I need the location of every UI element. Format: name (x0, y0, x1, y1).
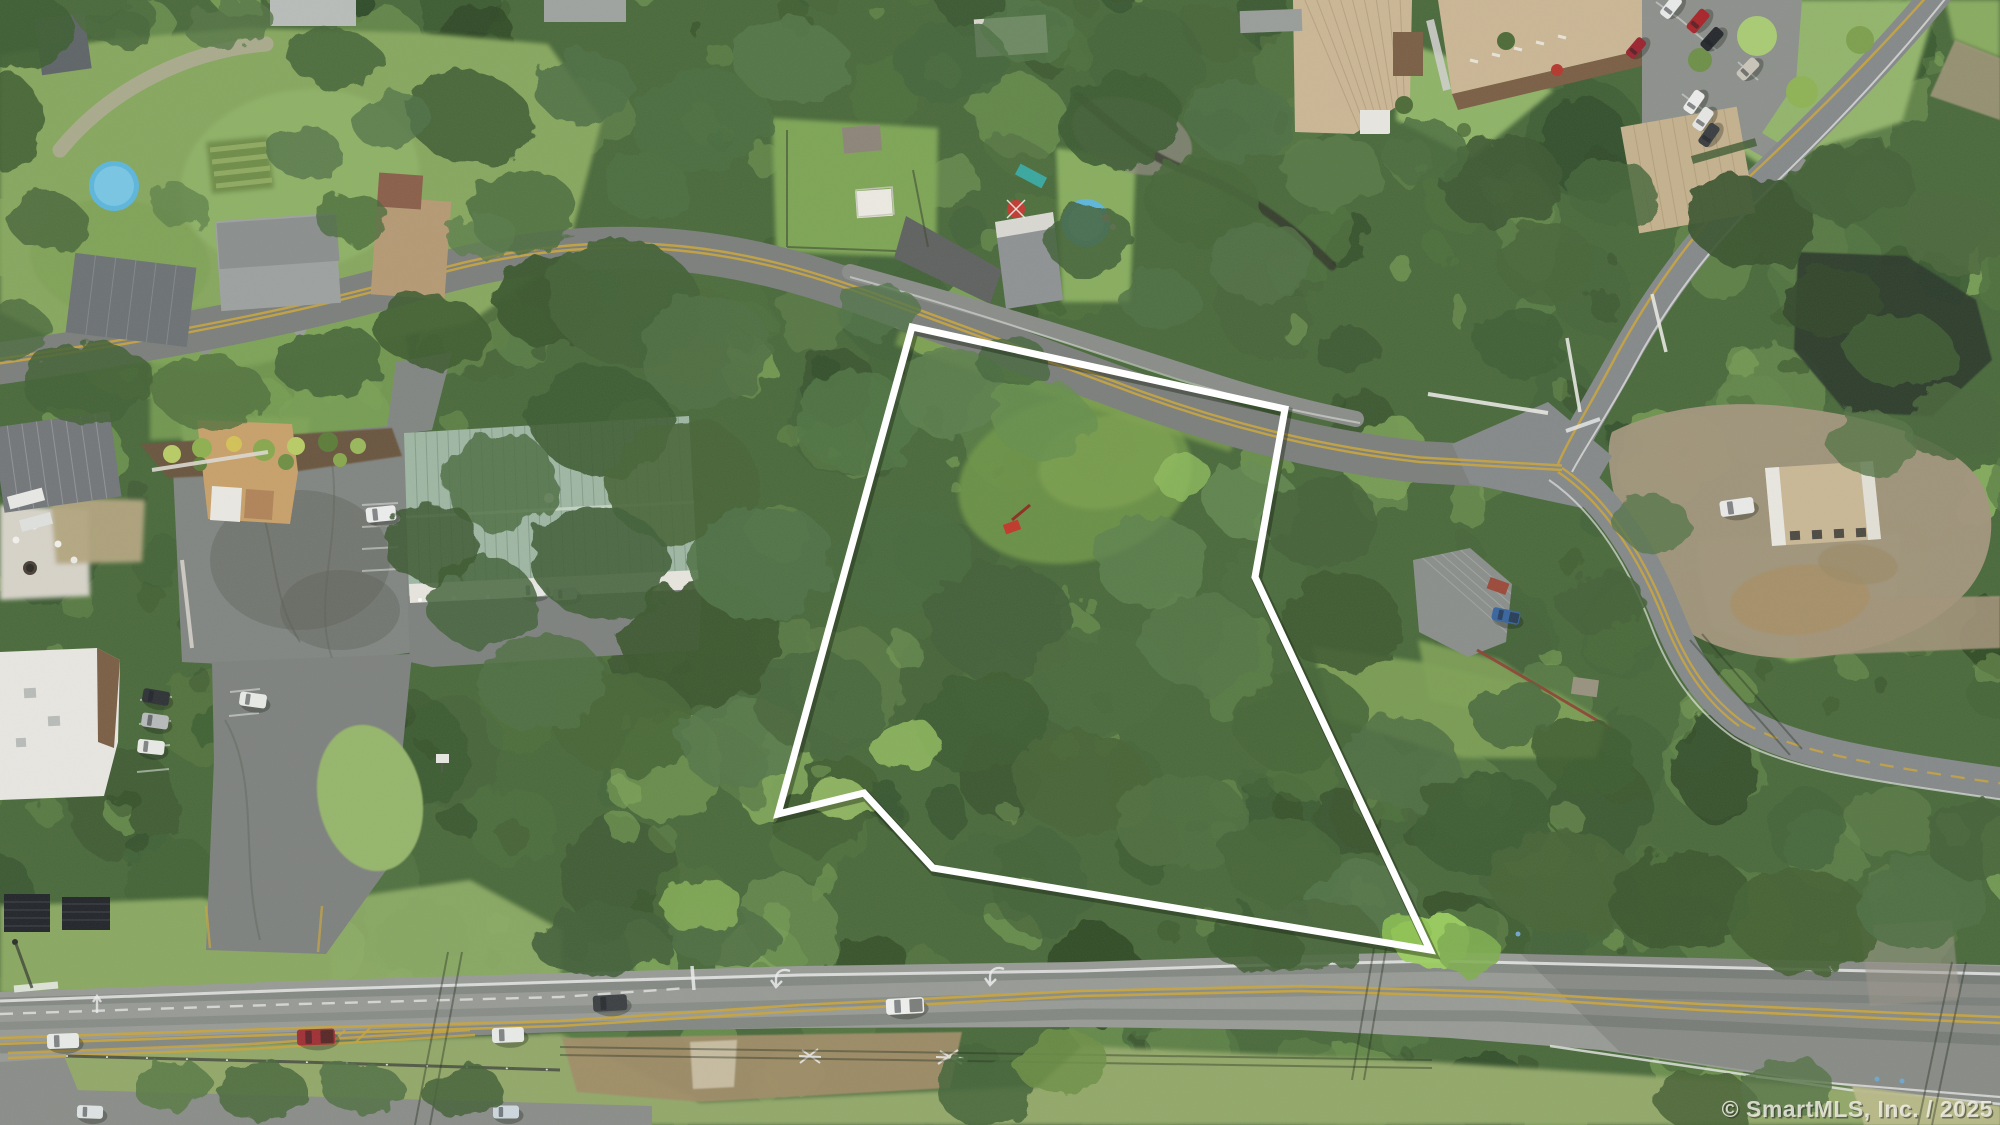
aerial-photo: © SmartMLS, Inc. / 2025 © SmartMLS, Inc.… (0, 0, 2000, 1125)
watermark-group: © SmartMLS, Inc. / 2025 © SmartMLS, Inc.… (1722, 1096, 1995, 1124)
aerial-scene-svg: © SmartMLS, Inc. / 2025 © SmartMLS, Inc.… (0, 0, 2000, 1125)
photo-grain (0, 0, 2000, 1125)
mls-watermark: © SmartMLS, Inc. / 2025 (1722, 1096, 1993, 1122)
scene-render-root (0, 0, 2000, 1125)
